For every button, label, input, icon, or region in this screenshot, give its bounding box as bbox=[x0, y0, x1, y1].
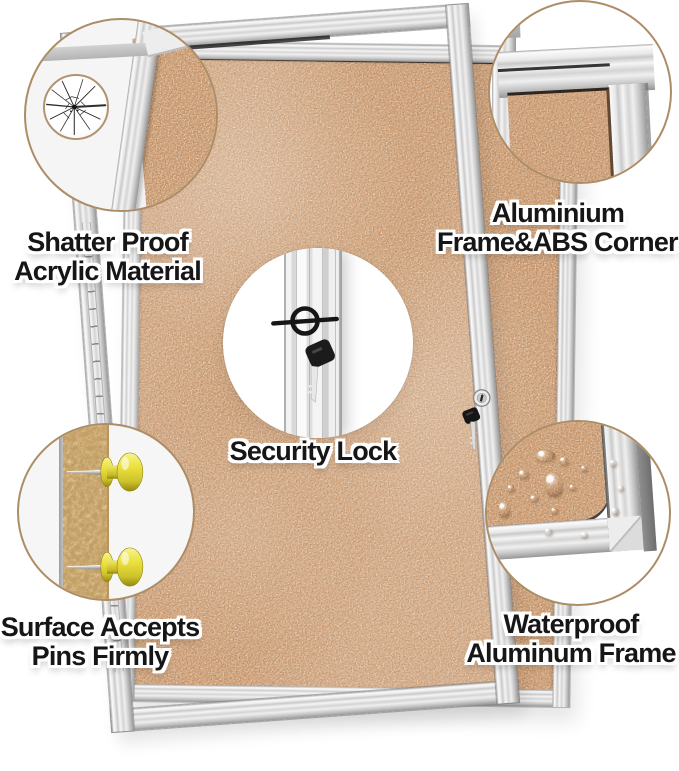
callout-lock-circle bbox=[223, 248, 413, 438]
frame-corner-miter bbox=[607, 516, 643, 552]
label-aluminium-corners: Aluminium Frame&ABS Corners bbox=[437, 199, 679, 257]
label-line: Aluminium bbox=[437, 199, 679, 228]
label-line: Pins Firmly bbox=[0, 642, 205, 671]
key-blade bbox=[470, 422, 477, 451]
label-line: Frame&ABS Corners bbox=[437, 228, 679, 257]
push-pin-icon bbox=[63, 544, 151, 590]
callout-shatterproof-circle bbox=[24, 18, 218, 212]
push-pin-icon bbox=[63, 449, 151, 495]
label-security-lock: Security Lock bbox=[203, 437, 423, 466]
key-icon bbox=[304, 338, 337, 402]
label-line: Waterproof bbox=[463, 610, 679, 639]
frame-right-band bbox=[607, 83, 651, 184]
label-line: Surface Accepts bbox=[0, 613, 205, 642]
frame-corner-group bbox=[485, 420, 671, 606]
cork-grain-texture bbox=[508, 91, 612, 184]
lock-icon bbox=[263, 290, 373, 420]
callout-pins-circle bbox=[17, 423, 195, 601]
callout-waterproof-circle bbox=[485, 420, 671, 606]
cracked-glass-icon bbox=[43, 74, 109, 140]
label-line: Shatter Proof bbox=[0, 228, 225, 257]
label-waterproof: Waterproof Aluminum Frame bbox=[463, 610, 679, 668]
label-line: Aluminum Frame bbox=[463, 639, 679, 668]
label-line: Security Lock bbox=[203, 437, 423, 466]
label-shatterproof: Shatter Proof Acrylic Material bbox=[0, 228, 225, 286]
label-line: Acrylic Material bbox=[0, 257, 225, 286]
frame-seam bbox=[498, 63, 610, 71]
corner-cap bbox=[490, 9, 521, 38]
callout-corner-circle bbox=[488, 0, 672, 184]
cork-corner-view bbox=[507, 87, 614, 184]
product-feature-image: Shatter Proof Acrylic Material Aluminium… bbox=[0, 0, 679, 771]
label-pins: Surface Accepts Pins Firmly bbox=[0, 613, 205, 671]
